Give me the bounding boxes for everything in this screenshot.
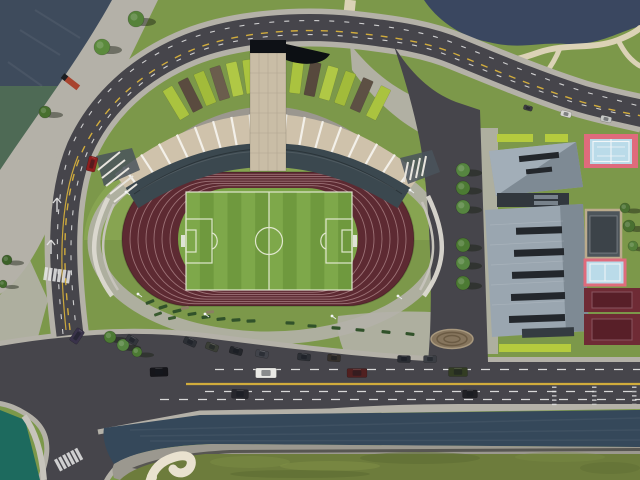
building-connector	[497, 193, 569, 207]
render-canvas	[0, 0, 640, 480]
car	[463, 390, 478, 398]
car	[449, 368, 468, 377]
car	[347, 369, 367, 378]
car	[397, 355, 410, 362]
basketball-court-blue	[585, 260, 625, 285]
car	[424, 356, 437, 363]
goal	[353, 235, 357, 247]
football-pitch	[181, 192, 357, 290]
training-court	[586, 210, 621, 258]
car	[256, 368, 277, 378]
gymnasium-north	[489, 142, 583, 196]
goal	[181, 235, 185, 247]
aerial-stadium-render	[0, 0, 640, 480]
fountain	[431, 330, 473, 349]
gymnasium-south	[485, 204, 589, 338]
car	[150, 367, 168, 377]
buildings	[485, 142, 589, 338]
tennis-court	[584, 134, 638, 168]
basketball-court-maroon	[584, 288, 640, 345]
car	[297, 353, 311, 361]
south-lawn	[120, 452, 640, 480]
car	[327, 354, 340, 362]
car	[231, 389, 248, 399]
